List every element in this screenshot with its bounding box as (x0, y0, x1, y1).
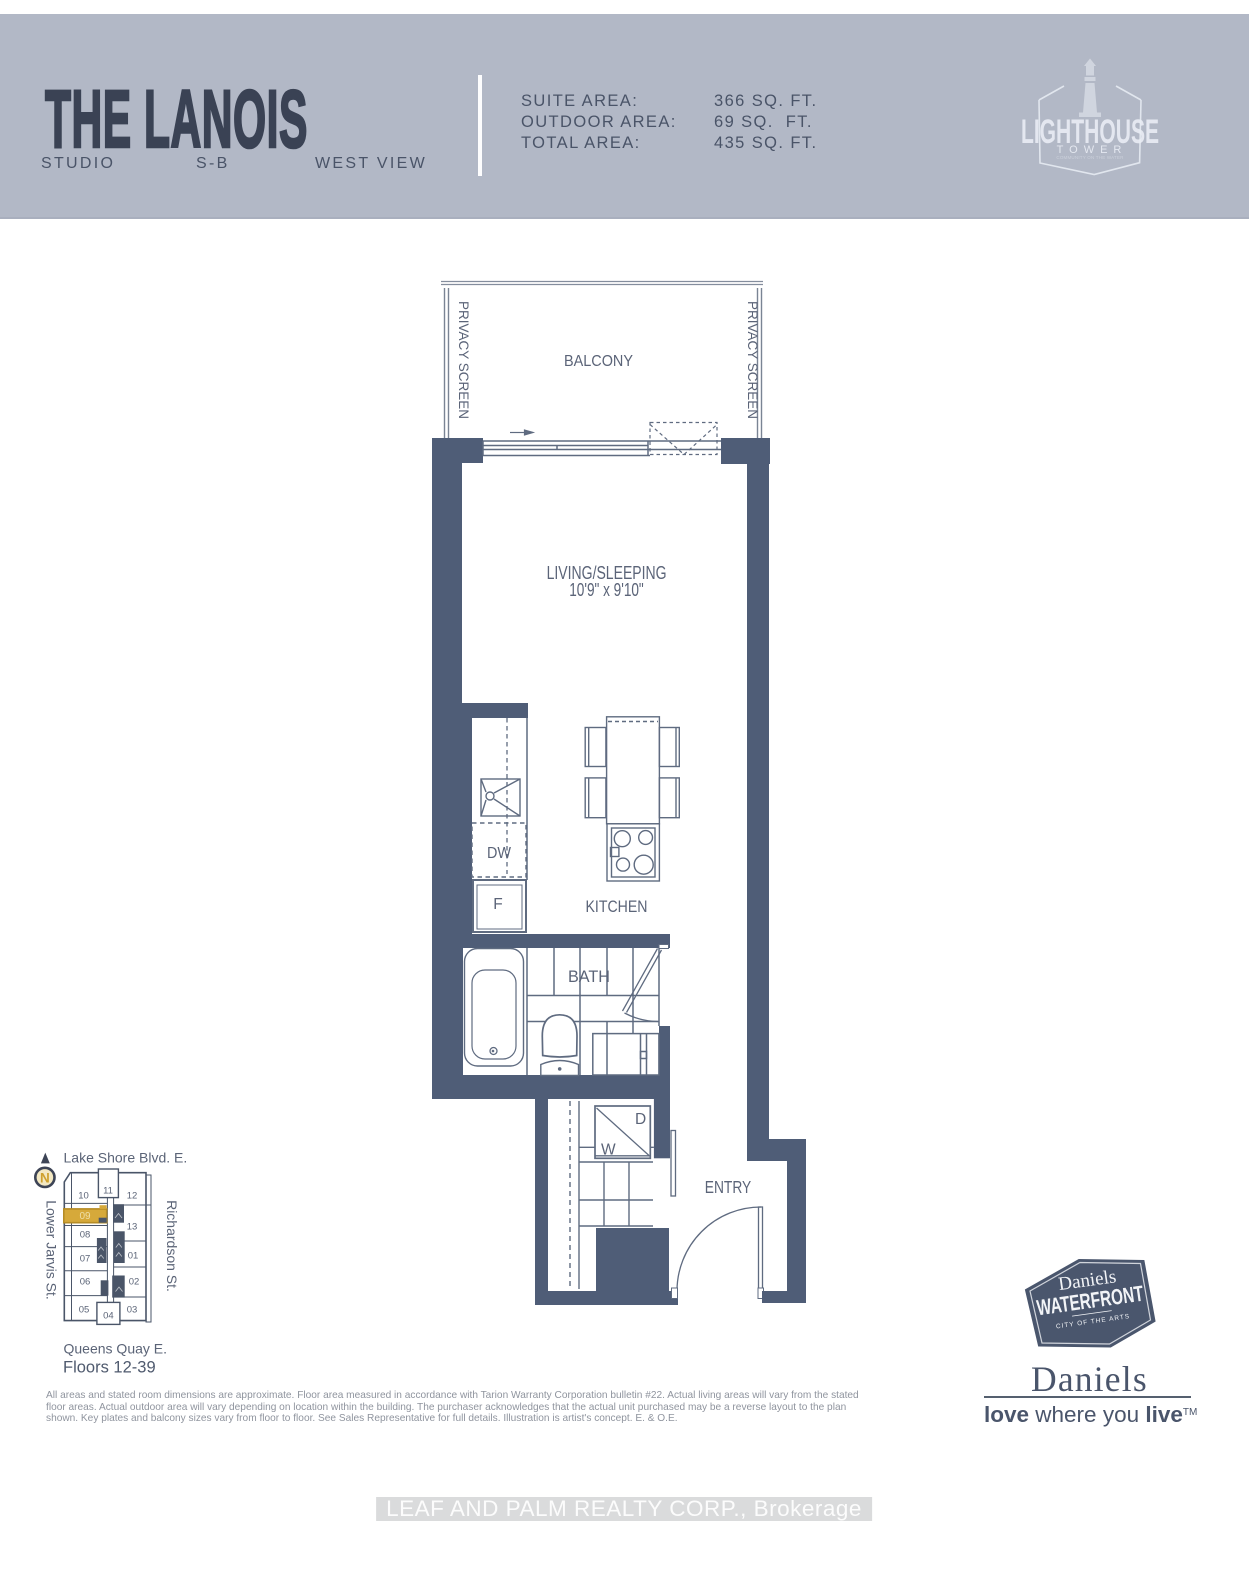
svg-text:07: 07 (80, 1254, 91, 1265)
svg-text:04: 04 (103, 1311, 114, 1322)
svg-text:N: N (40, 1170, 50, 1185)
svg-text:Floors 12-39: Floors 12-39 (63, 1359, 156, 1377)
svg-text:06: 06 (80, 1277, 91, 1288)
svg-text:PRIVACY SCREEN: PRIVACY SCREEN (456, 301, 471, 419)
svg-text:01: 01 (128, 1251, 139, 1262)
svg-text:ENTRY: ENTRY (705, 1177, 752, 1197)
svg-text:10'9" x 9'10": 10'9" x 9'10" (569, 580, 644, 600)
svg-text:DW: DW (487, 845, 511, 862)
svg-text:12: 12 (127, 1191, 138, 1202)
svg-text:D: D (635, 1111, 646, 1128)
svg-text:W: W (601, 1142, 616, 1159)
svg-text:13: 13 (127, 1222, 138, 1233)
svg-text:02: 02 (129, 1277, 140, 1288)
svg-text:KITCHEN: KITCHEN (586, 898, 648, 916)
svg-text:03: 03 (127, 1305, 138, 1316)
svg-text:F: F (493, 896, 502, 913)
svg-text:05: 05 (79, 1305, 90, 1316)
svg-text:BATH: BATH (568, 968, 610, 986)
svg-text:09: 09 (79, 1211, 91, 1222)
svg-text:Queens Quay E.: Queens Quay E. (64, 1341, 168, 1357)
svg-text:Lower Jarvis St.: Lower Jarvis St. (44, 1200, 60, 1300)
svg-text:Lake Shore Blvd. E.: Lake Shore Blvd. E. (64, 1150, 188, 1166)
svg-text:BALCONY: BALCONY (564, 353, 633, 370)
svg-text:10: 10 (78, 1191, 89, 1202)
svg-text:08: 08 (80, 1230, 91, 1241)
svg-text:PRIVACY SCREEN: PRIVACY SCREEN (745, 301, 760, 419)
svg-text:Richardson St.: Richardson St. (164, 1200, 180, 1292)
svg-text:11: 11 (103, 1186, 113, 1197)
